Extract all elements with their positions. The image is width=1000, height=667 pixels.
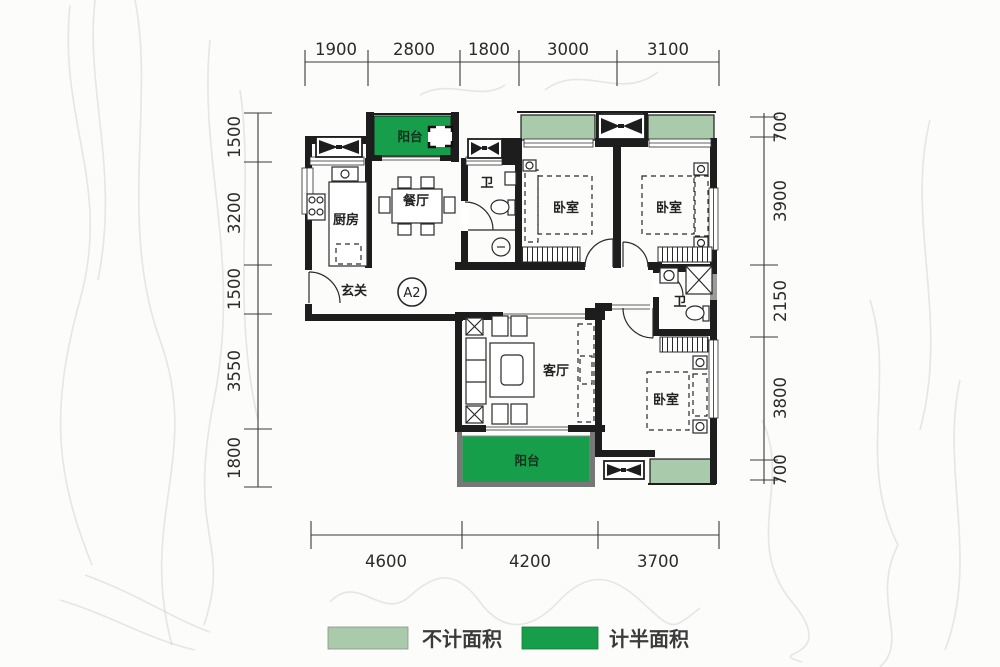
- legend-label-half-count: 计半面积: [609, 627, 689, 651]
- dim-top-5: 3100: [647, 40, 689, 59]
- green-areas: [374, 115, 714, 484]
- bedroom3-door: [623, 308, 653, 338]
- bath1-door: [460, 201, 493, 231]
- unit-label: A2: [403, 286, 420, 301]
- dim-top-2: 2800: [393, 40, 435, 59]
- label-balcony-bottom: 阳台: [514, 453, 539, 468]
- label-bedroom1: 卧室: [553, 200, 579, 216]
- unit-badge: A2: [398, 278, 426, 306]
- dim-right-3: 2150: [771, 280, 790, 322]
- bay-window-bedroom1: [521, 115, 595, 140]
- legend-swatch-no-count: [328, 627, 408, 649]
- dim-right-2: 3900: [771, 180, 790, 222]
- dimension-chain-right: 700 3900 2150 3800 700: [750, 111, 790, 486]
- label-entry: 玄关: [341, 283, 367, 299]
- floorplan-page: 1900 2800 1800 3000 3100 4600 4200 3700 …: [0, 0, 1000, 667]
- label-balcony-top: 阳台: [397, 129, 422, 144]
- legend-label-no-count: 不计面积: [422, 627, 502, 651]
- dim-right-1: 700: [771, 111, 790, 143]
- bedroom3-wardrobe: [660, 337, 708, 352]
- dim-top-4: 3000: [547, 40, 589, 59]
- dim-top-3: 1800: [468, 40, 510, 59]
- top-balcony-threshold: [382, 157, 440, 160]
- dimension-chain-bottom: 4600 4200 3700: [311, 521, 719, 571]
- bedroom3-door-threshold: [612, 305, 650, 309]
- ac-unit-icon-bedrooms-top: [598, 114, 645, 139]
- label-kitchen: 厨房: [333, 212, 359, 228]
- ac-unit-icon-bath1-top: [468, 139, 502, 158]
- label-bedroom2: 卧室: [656, 200, 682, 216]
- dimension-chain-left: 1500 3200 1500 3550 1800: [225, 113, 272, 487]
- bedroom3-furniture: [647, 337, 708, 433]
- bedroom2-door: [623, 242, 648, 267]
- dim-top-1: 1900: [315, 40, 357, 59]
- legend-swatch-half-count: [522, 627, 598, 649]
- ac-outdoor-spot-balcony: [428, 126, 452, 147]
- dim-left-3: 1500: [225, 268, 244, 310]
- bedroom1-wardrobe: [522, 247, 580, 262]
- bay-window-bedroom3: [650, 459, 714, 484]
- label-dining: 餐厅: [402, 193, 429, 209]
- dim-left-5: 1800: [225, 437, 244, 479]
- entry-door: [304, 272, 340, 304]
- bottom-balcony-threshold: [486, 427, 568, 430]
- living-room-furniture: [466, 316, 594, 424]
- kitchen-top-window: [310, 157, 364, 165]
- label-bath1: 卫: [480, 176, 493, 191]
- legend: 不计面积 计半面积: [328, 627, 689, 651]
- dimension-chain-top: 1900 2800 1800 3000 3100: [305, 40, 719, 86]
- ac-unit-icon-kitchen-top: [316, 137, 362, 157]
- dim-left-4: 3550: [225, 350, 244, 392]
- dim-bottom-3: 3700: [637, 552, 679, 571]
- bedroom1-bay-glazing: [524, 139, 593, 147]
- label-bedroom3: 卧室: [653, 392, 679, 408]
- label-bath2: 卫: [673, 295, 686, 310]
- ac-unit-icon-bottom: [604, 461, 644, 479]
- bedroom3-right-window: [709, 340, 718, 418]
- dim-bottom-1: 4600: [365, 552, 407, 571]
- dim-left-2: 3200: [225, 192, 244, 234]
- dim-right-4: 3800: [771, 377, 790, 419]
- bath2-fixtures: [660, 266, 712, 321]
- bedroom2-right-window: [709, 188, 718, 250]
- bedroom2-wardrobe: [658, 247, 712, 262]
- floorplan-canvas: 1900 2800 1800 3000 3100 4600 4200 3700 …: [0, 0, 1000, 667]
- bay-window-bedroom2: [648, 115, 714, 140]
- bedroom2-bay-glazing: [649, 139, 711, 147]
- label-living: 客厅: [543, 363, 569, 379]
- bedroom1-door: [585, 239, 613, 267]
- dim-bottom-2: 4200: [509, 552, 551, 571]
- dim-right-5: 700: [771, 454, 790, 486]
- dim-left-1: 1500: [225, 116, 244, 158]
